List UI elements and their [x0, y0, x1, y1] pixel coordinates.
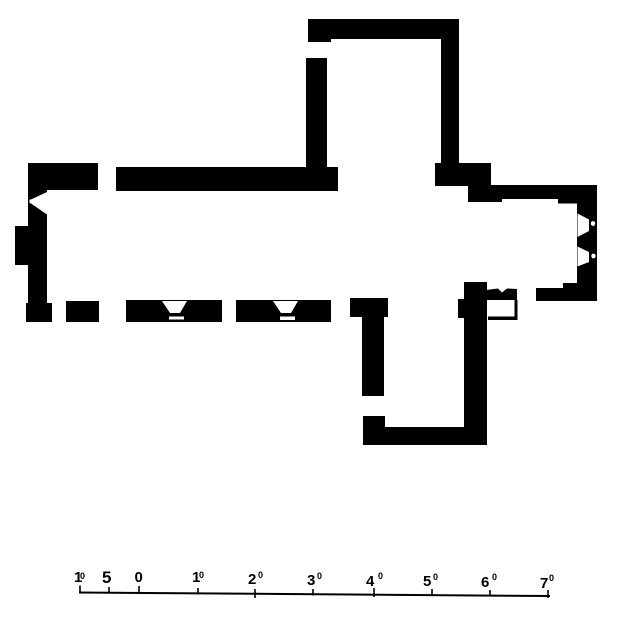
svg-text:4: 4: [366, 573, 375, 590]
svg-text:0: 0: [317, 571, 322, 581]
svg-text:7: 7: [540, 575, 548, 592]
svg-text:0: 0: [258, 570, 263, 580]
svg-text:0: 0: [549, 573, 554, 583]
svg-text:6: 6: [481, 574, 489, 591]
svg-text:0: 0: [135, 569, 143, 586]
svg-text:3: 3: [307, 572, 315, 589]
svg-text:2: 2: [248, 571, 256, 588]
svg-text:0: 0: [433, 572, 438, 582]
svg-text:0: 0: [492, 572, 497, 582]
svg-text:0: 0: [378, 571, 383, 581]
svg-text:5: 5: [423, 573, 431, 590]
svg-text:0: 0: [80, 571, 85, 581]
svg-text:5: 5: [102, 568, 111, 587]
svg-text:0: 0: [199, 570, 204, 580]
